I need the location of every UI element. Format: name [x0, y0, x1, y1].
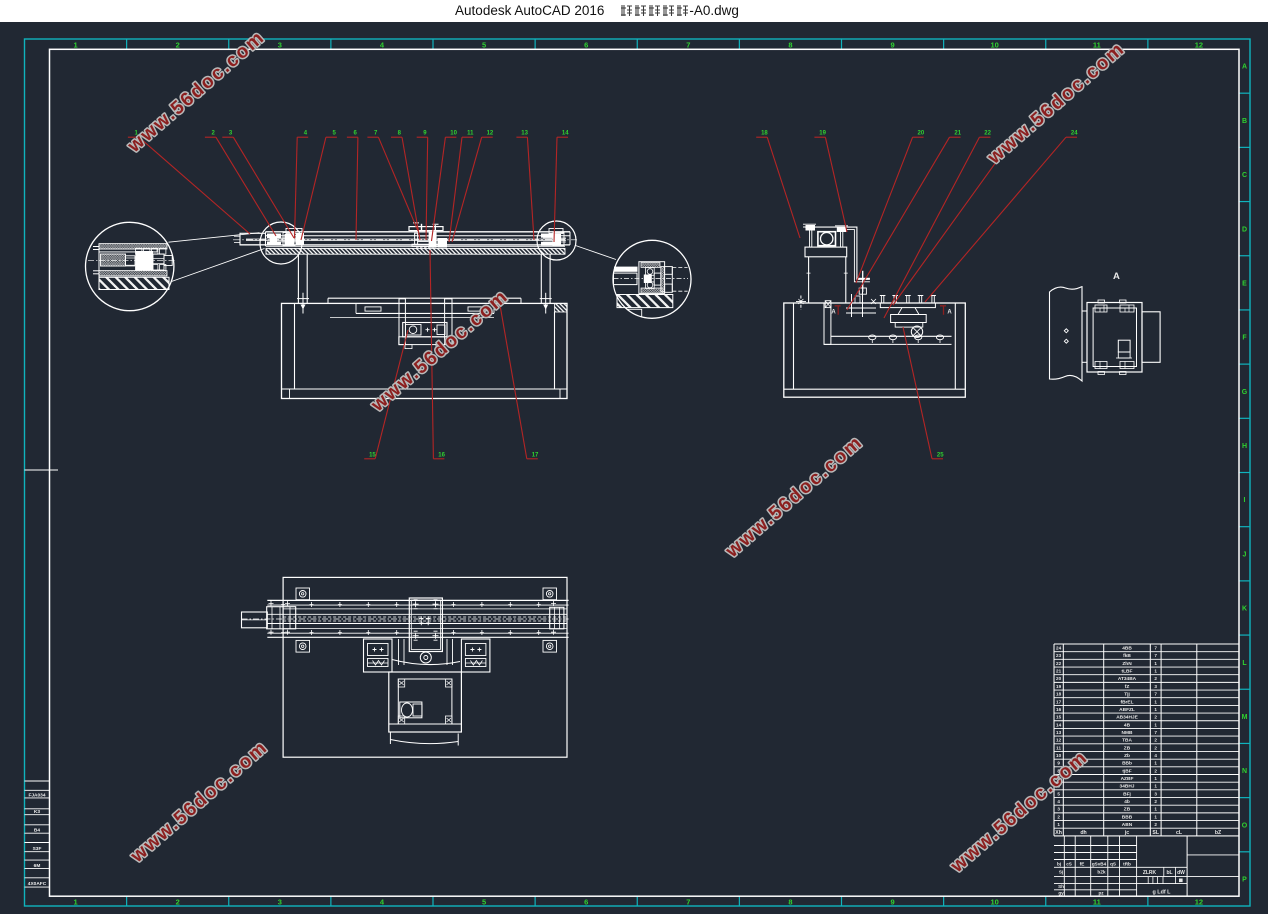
svg-text:15: 15 [369, 452, 376, 458]
svg-text:12: 12 [487, 131, 494, 137]
svg-text:4: 4 [1154, 753, 1157, 758]
svg-text:4BB: 4BB [1122, 646, 1132, 652]
svg-text:A: A [1113, 271, 1120, 282]
svg-text:14: 14 [1056, 722, 1062, 727]
svg-text:fZ: fZ [1125, 684, 1130, 690]
svg-text:1: 1 [73, 898, 77, 907]
svg-text:7: 7 [686, 41, 690, 50]
svg-text:J: J [1243, 551, 1247, 558]
svg-text:AT34BA: AT34BA [1118, 676, 1137, 682]
svg-text:3: 3 [1154, 791, 1157, 796]
svg-text:10: 10 [450, 131, 457, 137]
svg-text:24: 24 [1056, 646, 1062, 651]
svg-text:21: 21 [1056, 669, 1062, 674]
svg-text:D: D [1242, 226, 1247, 233]
svg-text:ABN: ABN [1122, 822, 1133, 828]
svg-text:qS: qS [1110, 861, 1116, 866]
svg-text:Zb: Zb [1124, 753, 1130, 759]
svg-text:2: 2 [1154, 799, 1157, 804]
svg-text:dh: dh [1080, 830, 1086, 836]
svg-text:N: N [1242, 768, 1247, 775]
svg-text:12: 12 [1195, 898, 1203, 907]
svg-text:A: A [947, 310, 952, 316]
svg-text:tjBF: tjBF [1122, 768, 1131, 774]
svg-text:2: 2 [1154, 822, 1157, 827]
svg-text:4X0AFC: 4X0AFC [28, 881, 47, 887]
svg-text:S3F: S3F [33, 846, 42, 852]
svg-text:1: 1 [73, 41, 77, 50]
svg-text:5: 5 [482, 41, 486, 50]
svg-text:ZLRK: ZLRK [1143, 870, 1157, 876]
svg-text:20: 20 [918, 131, 925, 137]
svg-text:3: 3 [1057, 807, 1060, 812]
svg-text:C: C [1242, 172, 1247, 179]
svg-text:1: 1 [1154, 807, 1157, 812]
svg-text:FJA034: FJA034 [28, 793, 45, 799]
svg-text:11: 11 [467, 131, 474, 137]
svg-text:SL: SL [1152, 830, 1159, 836]
svg-text:19: 19 [1056, 684, 1062, 689]
svg-text:1: 1 [1154, 814, 1157, 819]
svg-text:bZ: bZ [1215, 830, 1222, 836]
svg-text:18: 18 [761, 131, 768, 137]
svg-text:1: 1 [1154, 761, 1157, 766]
svg-text:16: 16 [1056, 707, 1062, 712]
svg-text:16: 16 [438, 452, 445, 458]
svg-text:K: K [1242, 606, 1247, 613]
svg-text:34BHJ: 34BHJ [1120, 784, 1135, 790]
svg-text:7: 7 [1154, 730, 1157, 735]
svg-text:21: 21 [954, 131, 961, 137]
svg-text:11: 11 [1093, 41, 1101, 50]
svg-text:BBB: BBB [1122, 814, 1133, 820]
svg-text:17: 17 [1056, 699, 1062, 704]
svg-text:6: 6 [584, 898, 588, 907]
svg-text:NMB: NMB [1122, 730, 1133, 736]
svg-text:17: 17 [532, 452, 539, 458]
svg-text:2: 2 [1057, 814, 1060, 819]
svg-text:2: 2 [1154, 676, 1157, 681]
svg-text:6: 6 [584, 41, 588, 50]
svg-text:gy: gy [1058, 890, 1064, 895]
svg-text:gSvB4: gSvB4 [1092, 861, 1107, 866]
svg-text:B: B [1242, 118, 1247, 125]
svg-text:M: M [1242, 714, 1248, 721]
svg-text:cS: cS [1066, 861, 1072, 866]
svg-text:H: H [1242, 443, 1247, 450]
svg-text:A: A [831, 310, 836, 316]
svg-text:2: 2 [176, 898, 180, 907]
svg-text:14: 14 [562, 131, 569, 137]
svg-text:L: L [1242, 660, 1247, 667]
svg-text:11: 11 [1056, 745, 1061, 750]
svg-text:AZBF: AZBF [1121, 776, 1134, 782]
svg-text:fBrEL: fBrEL [1120, 699, 1133, 705]
svg-text:ZB: ZB [1124, 745, 1131, 751]
svg-text:1: 1 [1154, 661, 1157, 666]
svg-text:bZk: bZk [1097, 870, 1106, 875]
svg-text:B4: B4 [34, 828, 40, 834]
svg-text:23: 23 [1056, 653, 1062, 658]
svg-text:BFj: BFj [1123, 791, 1131, 797]
svg-text:1: 1 [1154, 784, 1157, 789]
svg-text:9: 9 [890, 41, 894, 50]
svg-text:fE: fE [1080, 861, 1085, 866]
svg-text:7: 7 [686, 898, 690, 907]
svg-text:6M: 6M [34, 863, 41, 869]
svg-text:7: 7 [1154, 692, 1157, 697]
svg-text:g Ldf L: g Ldf L [1153, 890, 1172, 896]
svg-text:BBb: BBb [1122, 761, 1132, 767]
svg-text:2: 2 [1154, 768, 1157, 773]
svg-text:TBA: TBA [1122, 738, 1132, 744]
svg-text:cL: cL [1176, 830, 1183, 836]
svg-text:2: 2 [1154, 738, 1157, 743]
svg-text:9: 9 [890, 898, 894, 907]
svg-text:Tjj: Tjj [1124, 692, 1130, 698]
svg-text:4B: 4B [1124, 722, 1131, 728]
svg-text:ABFZL: ABFZL [1119, 707, 1135, 713]
svg-text:Sj: Sj [1059, 870, 1063, 875]
svg-text:24: 24 [1071, 131, 1078, 137]
svg-text:8: 8 [788, 898, 792, 907]
svg-text:3: 3 [1154, 684, 1157, 689]
svg-text:1: 1 [1057, 822, 1060, 827]
svg-text:7: 7 [1154, 653, 1157, 658]
svg-text:bL: bL [1166, 870, 1172, 876]
svg-text:1: 1 [1154, 776, 1157, 781]
svg-text:22: 22 [1056, 661, 1062, 666]
svg-text:fkB: fkB [1123, 653, 1131, 659]
svg-text:1: 1 [1154, 722, 1157, 727]
svg-text:AB34HJE: AB34HJE [1116, 715, 1138, 721]
svg-text:4b: 4b [1124, 799, 1130, 805]
svg-text:tRb: tRb [1123, 861, 1131, 866]
svg-text:ZB: ZB [1124, 807, 1131, 813]
svg-text:tLBF: tLBF [1122, 669, 1133, 675]
svg-text:2: 2 [1154, 745, 1157, 750]
svg-text:18: 18 [1056, 692, 1062, 697]
svg-text:20: 20 [1056, 676, 1062, 681]
svg-text:25: 25 [937, 452, 944, 458]
svg-text:3: 3 [278, 41, 282, 50]
svg-text:10: 10 [991, 898, 999, 907]
svg-text:13: 13 [1056, 730, 1062, 735]
svg-text:19: 19 [819, 131, 826, 137]
svg-text:G: G [1242, 389, 1248, 396]
svg-text:jc: jc [1124, 830, 1129, 836]
svg-text:8: 8 [788, 41, 792, 50]
svg-text:11: 11 [1093, 898, 1101, 907]
svg-text:22: 22 [984, 131, 991, 137]
svg-text:I: I [1244, 497, 1246, 504]
svg-text:7: 7 [1154, 646, 1157, 651]
svg-text:2: 2 [1154, 715, 1157, 720]
svg-text:1: 1 [1154, 707, 1157, 712]
svg-text:12: 12 [1195, 41, 1203, 50]
svg-text:Xh: Xh [1055, 830, 1062, 836]
svg-text:bj: bj [1057, 861, 1061, 866]
svg-text:P: P [1242, 877, 1247, 884]
svg-text:10: 10 [991, 41, 999, 50]
svg-text:E: E [1242, 280, 1247, 287]
svg-text:12: 12 [1056, 738, 1062, 743]
svg-text:K3: K3 [34, 809, 40, 815]
svg-text:15: 15 [1056, 715, 1062, 720]
svg-text:Sh: Sh [1058, 884, 1064, 889]
svg-text:A: A [1242, 64, 1247, 71]
svg-text:5: 5 [482, 898, 486, 907]
svg-text:dW: dW [1177, 870, 1185, 876]
svg-text:2: 2 [176, 41, 180, 50]
svg-text:F: F [1242, 335, 1247, 342]
svg-text:1: 1 [1154, 699, 1157, 704]
svg-text:3: 3 [278, 898, 282, 907]
svg-text:4: 4 [1057, 799, 1060, 804]
svg-text:13: 13 [521, 131, 528, 137]
svg-text:10: 10 [1056, 753, 1062, 758]
svg-text:O: O [1242, 822, 1248, 829]
svg-text:pz: pz [1098, 890, 1104, 895]
svg-text:ZhN: ZhN [1122, 661, 1132, 667]
svg-text:1: 1 [1154, 669, 1157, 674]
